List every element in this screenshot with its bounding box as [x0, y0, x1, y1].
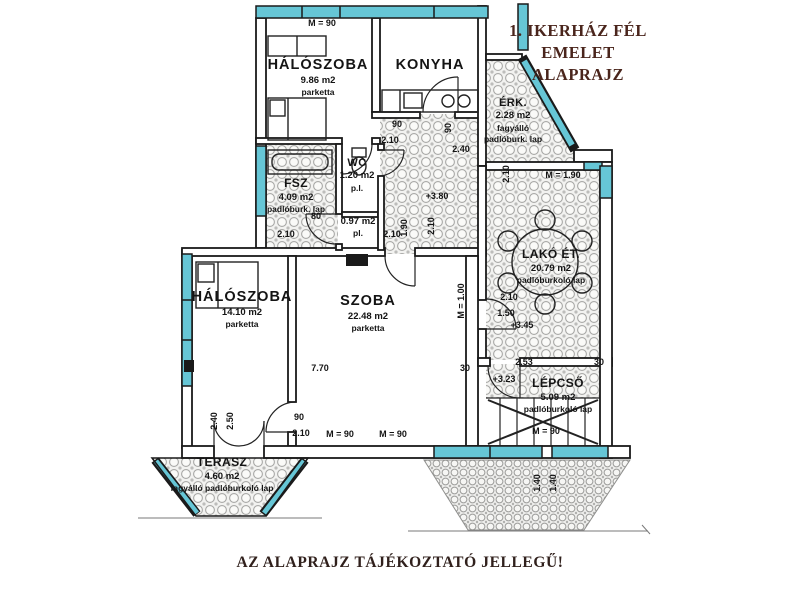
dimension-label: 2.40: [209, 412, 219, 430]
room-area: 4.60 m2: [170, 471, 274, 483]
dimension-label: 2.10: [501, 165, 511, 183]
room-area: 14.10 m2: [192, 307, 293, 319]
room-floor: fagyálló padlóburk. lap: [481, 123, 545, 145]
room-label-erkely: ÉRK.2.28 m2fagyálló padlóburk. lap: [481, 96, 545, 145]
room-label-lepcso: LÉPCSŐ5.09 m2padlóburkoló lap: [524, 376, 592, 415]
labels-layer: HÁLÓSZOBA9.86 m2parkettaKONYHAÉRK.2.28 m…: [0, 0, 800, 600]
dimension-label: 7.70: [311, 363, 329, 373]
floorplan-page: HÁLÓSZOBA9.86 m2parkettaKONYHAÉRK.2.28 m…: [0, 0, 800, 600]
room-area: 1.20 m2: [340, 170, 375, 182]
dimension-label: 90: [294, 412, 304, 422]
disclaimer-text: AZ ALAPRAJZ TÁJÉKOZTATÓ JELLEGŰ!: [0, 554, 800, 572]
room-floor: padlóburkoló lap: [524, 404, 592, 415]
room-name: HÁLÓSZOBA: [268, 56, 369, 75]
dimension-label: 1.40: [532, 474, 542, 492]
room-name: WC: [340, 156, 375, 170]
room-area: 5.09 m2: [524, 392, 592, 404]
room-label-konyha: KONYHA: [396, 56, 465, 75]
room-area: 22.48 m2: [340, 311, 396, 323]
room-label-wc: WC1.20 m2p.l.: [340, 156, 375, 194]
room-floor: parketta: [192, 319, 293, 330]
dimension-label: 2.10: [426, 217, 436, 235]
room-floor: parketta: [268, 87, 369, 98]
dimension-label: 1.90: [399, 219, 409, 237]
room-name: FSZ: [256, 176, 336, 192]
dimension-label: 90: [392, 119, 402, 129]
room-floor: pl.: [341, 228, 376, 239]
plan-title-line3: ALAPRAJZ: [509, 64, 647, 86]
room-name: TERASZ: [170, 455, 274, 471]
dimension-label: 2.10: [381, 135, 399, 145]
dimension-label: 2.53: [515, 357, 533, 367]
dimension-label: M = 1.90: [545, 170, 580, 180]
dimension-label: M = 90: [532, 426, 560, 436]
room-floor: fagyálló padlóburkoló lap: [170, 483, 274, 494]
dimension-label: 2.10: [500, 292, 518, 302]
room-label-lako-etkezo: LAKÓ ÉT.20.79 m2padlóburkoló lap: [517, 247, 585, 286]
dimension-label: M = 90: [326, 429, 354, 439]
room-area: 20.79 m2: [517, 263, 585, 275]
room-area: 0.97 m2: [341, 216, 376, 228]
dimension-label: +3.80: [426, 191, 449, 201]
room-floor: padlóburk. lap: [256, 204, 336, 215]
dimension-label: 30: [460, 363, 470, 373]
plan-title-line1: 1. IKERHÁZ FÉL: [509, 20, 647, 42]
room-floor: p.l.: [340, 183, 375, 194]
room-name: LAKÓ ÉT.: [517, 247, 585, 263]
plan-title: 1. IKERHÁZ FÉL EMELET ALAPRAJZ: [509, 20, 647, 85]
room-area: 4.09 m2: [256, 192, 336, 204]
room-name: HÁLÓSZOBA: [192, 288, 293, 307]
dimension-label: 80: [311, 211, 321, 221]
plan-title-line2: EMELET: [509, 42, 647, 64]
dimension-label: +3.45: [511, 320, 534, 330]
room-name: LÉPCSŐ: [524, 376, 592, 392]
room-label-kamra: 0.97 m2pl.: [341, 216, 376, 239]
dimension-label: 1.40: [548, 474, 558, 492]
dimension-label: 1.50: [497, 308, 515, 318]
dimension-label: 2.50: [225, 412, 235, 430]
dimension-label: +3.23: [493, 374, 516, 384]
room-label-haloszoba-2: HÁLÓSZOBA14.10 m2parketta: [192, 288, 293, 330]
dimension-label: 2.40: [452, 144, 470, 154]
room-name: ÉRK.: [481, 96, 545, 110]
room-floor: parketta: [340, 323, 396, 334]
dimension-label: 2.10: [292, 428, 310, 438]
dimension-label: 30: [594, 357, 604, 367]
dimension-label: M = 90: [379, 429, 407, 439]
room-name: KONYHA: [396, 56, 465, 75]
dimension-label: M = 90: [308, 18, 336, 28]
room-area: 9.86 m2: [268, 75, 369, 87]
dimension-label: 90: [443, 123, 453, 133]
room-area: 2.28 m2: [481, 110, 545, 122]
room-label-furdoszoba: FSZ4.09 m2padlóburk. lap: [256, 176, 336, 215]
room-label-haloszoba-1: HÁLÓSZOBA9.86 m2parketta: [268, 56, 369, 98]
room-name: SZOBA: [340, 292, 396, 311]
dimension-label: 2.10: [277, 229, 295, 239]
room-label-terasz: TERASZ4.60 m2fagyálló padlóburkoló lap: [170, 455, 274, 494]
dimension-label: M = 1.00: [456, 283, 466, 318]
room-label-szoba: SZOBA22.48 m2parketta: [340, 292, 396, 334]
room-floor: padlóburkoló lap: [517, 275, 585, 286]
